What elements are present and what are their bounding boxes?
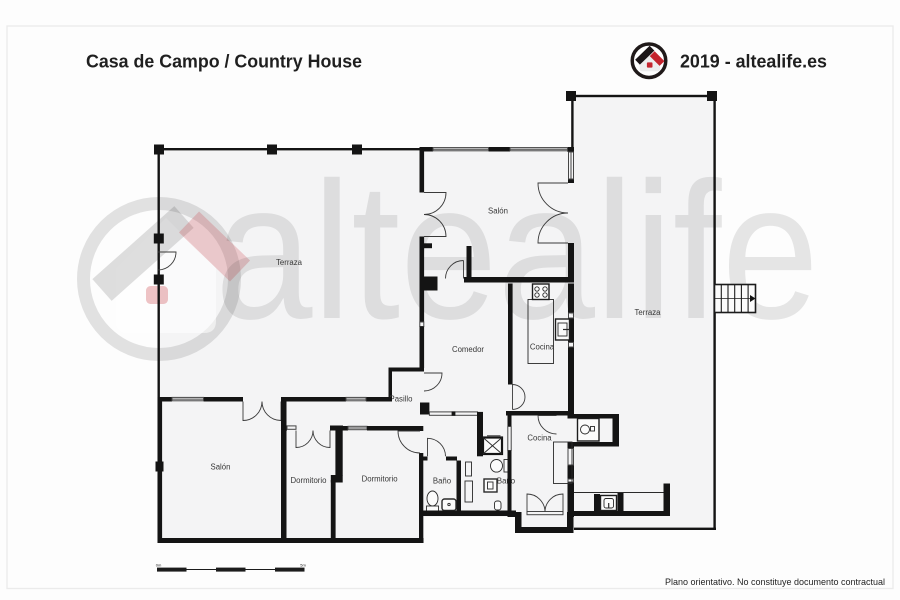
svg-text:Comedor: Comedor	[452, 345, 484, 354]
svg-text:Pasillo: Pasillo	[390, 395, 414, 404]
svg-text:2019 - altealife.es: 2019 - altealife.es	[680, 51, 827, 72]
svg-text:Casa de Campo / Country House: Casa de Campo / Country House	[86, 51, 362, 72]
svg-text:Baño: Baño	[433, 477, 452, 486]
svg-text:5m: 5m	[300, 563, 306, 568]
svg-text:Terraza: Terraza	[635, 308, 662, 317]
svg-text:Salón: Salón	[211, 463, 231, 472]
svg-text:altealife: altealife	[215, 142, 819, 360]
svg-text:Salón: Salón	[488, 207, 508, 216]
svg-text:Dormitorio: Dormitorio	[291, 476, 328, 485]
svg-text:Cocina: Cocina	[530, 342, 555, 351]
svg-text:Terraza: Terraza	[276, 258, 303, 267]
svg-text:Cocina: Cocina	[527, 434, 552, 443]
svg-text:Baño: Baño	[497, 477, 516, 486]
svg-text:Plano orientativo. No constitu: Plano orientativo. No constituye documen…	[665, 577, 885, 588]
svg-text:Dormitorio: Dormitorio	[362, 474, 399, 483]
svg-text:0m: 0m	[156, 563, 162, 568]
